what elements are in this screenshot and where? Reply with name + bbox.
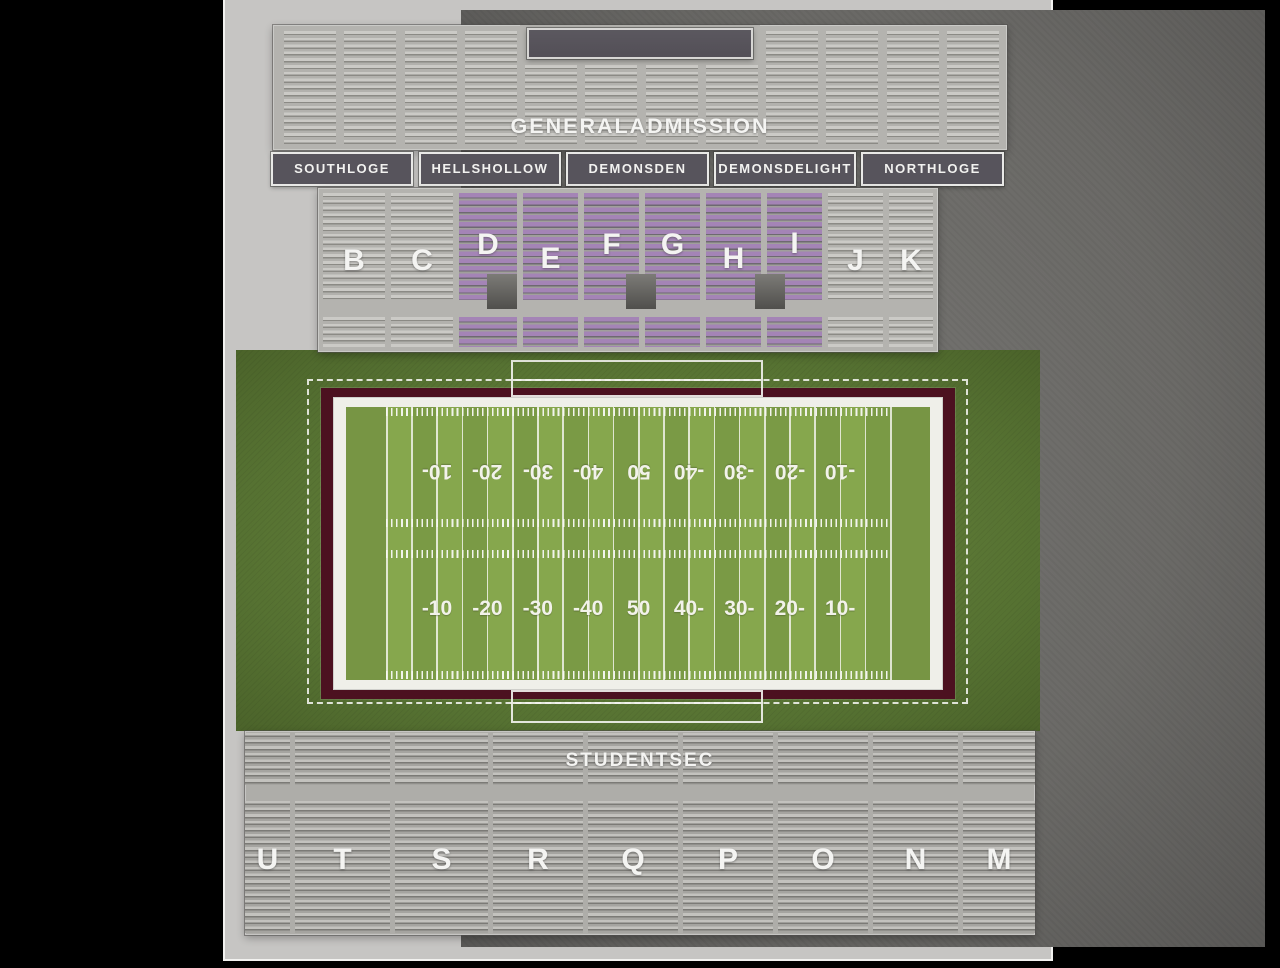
- hash-marks: [386, 550, 890, 558]
- five-yard-stripe: [814, 407, 839, 680]
- yard-number: 30-: [516, 459, 560, 483]
- yard-number: -20: [768, 459, 812, 483]
- yard-number: -10: [415, 597, 459, 621]
- tunnel-entrance: [626, 274, 656, 309]
- yard-numbers-top: 10-20-30-40-50-40-30-20-10: [346, 459, 930, 481]
- section-label: E: [521, 242, 581, 276]
- section-label: Q: [603, 843, 663, 877]
- football-field: 10-20-30-40-50-40-30-20-10-10-20-30-4050…: [346, 407, 930, 680]
- five-yard-stripe: [436, 407, 461, 680]
- five-yard-stripe: [537, 407, 562, 680]
- scoreboard: [527, 28, 753, 59]
- section-label: N: [886, 843, 946, 877]
- section-demonsden[interactable]: DEMONSDEN: [566, 152, 709, 186]
- yard-line: [865, 407, 867, 680]
- yard-line: [688, 407, 690, 680]
- tunnel-entrance: [487, 274, 517, 309]
- section-label: H: [704, 242, 764, 276]
- hash-marks: [386, 671, 890, 679]
- yard-line: [436, 407, 438, 680]
- five-yard-stripe: [739, 407, 764, 680]
- five-yard-stripe: [411, 407, 436, 680]
- seat-rows: [523, 317, 578, 347]
- stadium-seating-map: 10-20-30-40-50-40-30-20-10-10-20-30-4050…: [0, 0, 1280, 968]
- five-yard-stripe: [462, 407, 487, 680]
- five-yard-stripe: [588, 407, 613, 680]
- yard-line: [714, 407, 716, 680]
- seat-rows: [828, 317, 883, 347]
- yard-line: [512, 407, 514, 680]
- yard-number: 10-: [818, 597, 862, 621]
- yard-number: -20: [465, 597, 509, 621]
- yard-number: 10-: [415, 459, 459, 483]
- seat-rows: [584, 317, 639, 347]
- yard-number: -30: [717, 459, 761, 483]
- yard-line: [487, 407, 489, 680]
- tunnel-entrance: [755, 274, 785, 309]
- section-f[interactable]: [584, 188, 639, 352]
- five-yard-stripe: [613, 407, 638, 680]
- section-label: G: [643, 228, 703, 262]
- yard-line: [739, 407, 741, 680]
- yard-number: 20-: [465, 459, 509, 483]
- section-label: J: [826, 244, 886, 278]
- section-label: R: [508, 843, 568, 877]
- five-yard-stripe: [840, 407, 865, 680]
- section-label: D: [458, 228, 518, 262]
- yard-line: [613, 407, 615, 680]
- five-yard-stripe: [638, 407, 663, 680]
- general-admission-label: GENERALADMISSION: [273, 113, 1007, 139]
- yard-line: [764, 407, 766, 680]
- section-label: F: [582, 228, 642, 262]
- five-yard-stripe: [688, 407, 713, 680]
- section-northloge[interactable]: NORTHLOGE: [861, 152, 1004, 186]
- yard-line: [638, 407, 640, 680]
- section-general-admission[interactable]: GENERALADMISSION: [273, 25, 1007, 150]
- section-southloge[interactable]: SOUTHLOGE: [271, 152, 413, 186]
- five-yard-stripe: [714, 407, 739, 680]
- yard-line: [562, 407, 564, 680]
- hash-marks: [386, 519, 890, 527]
- seat-rows: [889, 317, 933, 347]
- section-label: C: [392, 244, 452, 278]
- student-section-label: STUDENTSEC: [245, 749, 1035, 773]
- walkway-line: [513, 379, 761, 381]
- yard-line: [462, 407, 464, 680]
- seat-rows: [459, 317, 517, 347]
- section-hellshollow[interactable]: HELLSHOLLOW: [419, 152, 561, 186]
- north-walkway-outline: [511, 360, 763, 397]
- hash-marks: [386, 408, 890, 416]
- yard-number: -30: [516, 597, 560, 621]
- section-label: T: [313, 843, 373, 877]
- seat-rows: [706, 317, 761, 347]
- section-label: M: [969, 843, 1029, 877]
- yard-number: -40: [566, 597, 610, 621]
- walkway-line: [513, 702, 761, 704]
- five-yard-stripe: [562, 407, 587, 680]
- section-label: U: [238, 843, 298, 877]
- section-label: P: [698, 843, 758, 877]
- section-label: O: [793, 843, 853, 877]
- student-section-stand: UTSRQPONM STUDENTSEC: [245, 731, 1035, 935]
- yard-number: 40-: [667, 597, 711, 621]
- yard-line: [814, 407, 816, 680]
- five-yard-stripe: [663, 407, 688, 680]
- yard-number: -40: [667, 459, 711, 483]
- yard-line: [840, 407, 842, 680]
- five-yard-stripe: [487, 407, 512, 680]
- section-demonsdelight[interactable]: DEMONSDELIGHT: [714, 152, 856, 186]
- seat-rows: [767, 317, 822, 347]
- yard-number: 40-: [566, 459, 610, 483]
- five-yard-stripe: [764, 407, 789, 680]
- five-yard-stripe: [789, 407, 814, 680]
- reserved-sections-stand: BCDEFGHIJK: [318, 188, 938, 352]
- section-label: B: [324, 244, 384, 278]
- yard-line: [411, 407, 413, 680]
- yard-line: [789, 407, 791, 680]
- south-walkway-outline: [511, 690, 763, 723]
- yard-line: [537, 407, 539, 680]
- yard-number: 20-: [768, 597, 812, 621]
- five-yard-stripe: [512, 407, 537, 680]
- five-yard-stripe: [865, 407, 890, 680]
- section-d[interactable]: [459, 188, 517, 352]
- yard-number: 50: [617, 459, 661, 483]
- section-label: I: [765, 227, 825, 261]
- section-i[interactable]: [767, 188, 822, 352]
- yard-numbers-bottom: -10-20-30-405040-30-20-10-: [346, 597, 930, 619]
- yard-line: [588, 407, 590, 680]
- seat-rows: [323, 317, 385, 347]
- yard-line: [663, 407, 665, 680]
- section-label: K: [881, 244, 941, 278]
- five-yard-stripe: [386, 407, 411, 680]
- seat-rows: [391, 317, 453, 347]
- section-label: S: [412, 843, 472, 877]
- yard-line: [386, 407, 388, 680]
- yard-number: 30-: [717, 597, 761, 621]
- section-g[interactable]: [645, 188, 700, 352]
- yard-number: -10: [818, 459, 862, 483]
- yard-number: 50: [617, 597, 661, 621]
- seat-rows: [645, 317, 700, 347]
- yard-line: [890, 407, 892, 680]
